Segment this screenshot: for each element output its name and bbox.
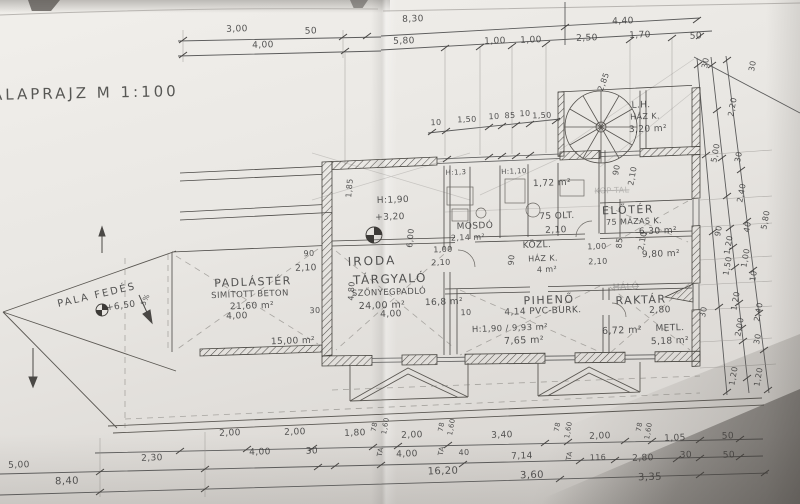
dim-label: SIMÍTOTT BETON [211,289,289,300]
room-label: MOSDÓ [457,222,494,232]
dim-label: 5,18 m² [651,337,689,347]
dim-label: 3,00 [226,25,248,35]
dim-label: 1,70 [629,31,651,41]
dim-label: 1,00 [587,243,607,252]
dim-label: 2,14 m² [451,233,485,242]
dim-label: KOP-TAL [594,186,629,195]
dim-label: 2,40 [753,302,764,323]
dim-label: 30 [734,151,744,163]
dim-label: 30 [748,60,758,72]
dim-label: 16,8 m² [425,298,463,308]
dim-label: 8,30 [402,15,424,25]
dim-label: 2,10 [637,231,648,252]
dim-label: SZŐNYEGPADLÓ [352,287,427,298]
room-label: TÁRGYALÓ [353,272,427,287]
dim-label: 1,00 [484,37,506,47]
dim-label: 2,10 [627,166,638,187]
dim-label: 1,50 [722,256,733,277]
dim-label: 2,40 [736,183,747,204]
dim-label: +3,20 [375,213,405,223]
dim-label: 5,00 [710,143,721,164]
dim-label: 78 [371,422,380,433]
room-label: PADLÁSTÉR [214,275,292,289]
dim-label: 4 m² [537,266,558,275]
dim-label: 50 [690,32,703,41]
dim-label: 4,40 [612,17,634,27]
dim-label: 2,85 [597,72,611,93]
dim-label: 10 [519,110,530,118]
dim-label: 1,00 [520,36,542,46]
dim-label: 30 [309,307,320,315]
dim-label: 1,00 [433,246,453,255]
dim-label: 1,60 [381,417,391,435]
dim-label: 4,00 [252,41,274,51]
dim-label: 2,10 [431,259,451,268]
dim-label: 30 [701,57,711,69]
dim-label: +6,50 [106,300,137,313]
dim-label: 7,65 m² [504,336,544,347]
dim-label: HÁZ K. [528,254,558,263]
dim-label: 10 [430,119,441,127]
dim-label: 9,80 m² [642,250,680,260]
dim-label: 5% [140,293,151,307]
dim-label: 30 [753,333,763,345]
dim-label: 6,72 m² [602,326,642,337]
dim-label: 2,20 [727,97,738,118]
dim-label: 15,00 m² [271,337,315,348]
dim-label: 75 OLT. [539,212,575,222]
dim-label: 40 [743,221,753,233]
dim-label: 10 [488,113,499,121]
dim-label: 4,14 PVC-BURK. [504,306,581,318]
dim-label: 2,00 [734,317,745,338]
dim-label: 1,50 [532,112,552,121]
dim-label: 2,80 [649,306,671,316]
dim-label: 10 [749,270,759,282]
room-label: IRODA [348,254,397,268]
dim-label: 90 [303,250,314,258]
dim-label: METL. [655,324,684,334]
dim-label: 90 [714,225,724,237]
room-label: KÖZL. [523,241,552,251]
dim-label: 1,20 [723,235,734,256]
room-label: PIHENŐ [523,294,574,307]
dim-label: HÁZ K. [630,112,660,121]
dim-label: 1,50 [457,116,477,125]
dim-label: H:1,90 / 9,93 m² [472,323,548,334]
dim-label: 90 [508,254,517,266]
dim-label: H:1,3 [446,169,467,177]
dim-label: 2,10 [295,264,317,274]
dim-label: HÁLÓ [613,283,640,293]
dim-label: 4,00 [226,312,248,322]
room-label: L.H. [631,101,650,111]
dim-label: 3,20 m² [629,125,667,135]
dim-label: 30 [699,306,709,318]
dim-label: 4,00 [380,310,402,320]
dim-label: 1,85 [345,178,355,198]
room-label: ELŐTÉR [602,204,654,217]
dim-label: 1,00 [740,248,751,269]
dim-label: 1,72 m² [533,179,571,189]
dim-label: 90 [612,164,622,176]
floor-plan-page: 3,00504,008,305,804,401,001,002,501,7050… [0,0,800,504]
dim-label: H:1,90 [377,196,410,206]
dim-label: 5,80 [393,37,415,47]
dim-label: 2,50 [576,34,598,44]
dim-label: 50 [305,27,318,36]
dim-label: 85 [504,112,515,120]
dim-label: 85 [616,237,625,249]
dim-label: 2,10 [588,258,608,267]
room-label: RAKTÁR [615,294,666,307]
dim-label: 1,20 [730,291,741,312]
dim-label: 75 MÁZAS K. [606,217,662,227]
dim-label: 78 [438,422,447,433]
dim-label: 6,00 [406,228,416,248]
dim-label: 10 [460,309,471,317]
dim-label: 2,10 [545,226,567,236]
dim-label: H:1,10 [501,168,527,176]
